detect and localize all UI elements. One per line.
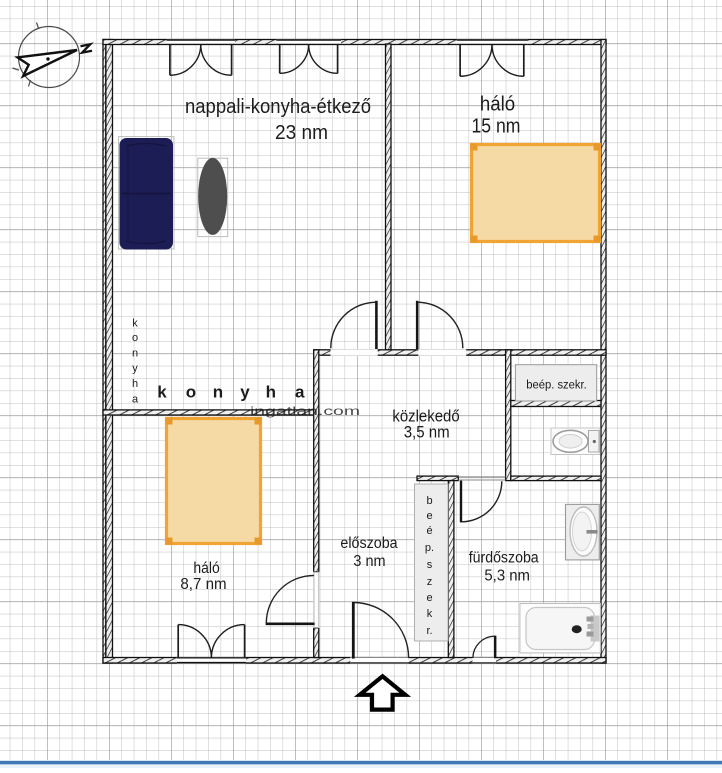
svg-text:k: k [427,608,433,620]
svg-text:n: n [213,382,223,401]
svg-text:r.: r. [426,625,432,637]
svg-text:8,7 nm: 8,7 nm [180,576,226,593]
svg-text:e: e [426,510,432,522]
svg-text:a: a [132,393,139,405]
svg-text:ingatlan.com: ingatlan.com [250,404,360,418]
svg-text:y: y [240,382,250,401]
svg-text:z: z [427,576,433,588]
svg-text:y: y [132,363,138,375]
svg-text:s: s [427,559,433,571]
svg-text:háló: háló [480,94,515,116]
svg-text:k: k [132,318,138,330]
svg-text:h: h [132,378,138,390]
svg-text:fürdőszoba: fürdőszoba [469,550,539,567]
svg-text:p.: p. [425,542,434,554]
svg-text:o: o [186,382,196,401]
svg-text:nappali-konyha-étkező: nappali-konyha-étkező [185,96,371,118]
svg-text:23 nm: 23 nm [275,122,328,144]
svg-text:előszoba: előszoba [340,535,398,552]
svg-text:b: b [426,495,432,507]
svg-text:a: a [295,382,305,401]
svg-text:háló: háló [193,560,219,577]
svg-text:5,3 nm: 5,3 nm [484,568,530,585]
svg-text:o: o [132,332,138,344]
svg-text:e: e [426,592,432,604]
svg-text:3,5 nm: 3,5 nm [404,423,450,442]
svg-text:15 nm: 15 nm [472,116,521,138]
svg-text:k: k [157,382,167,401]
svg-text:é: é [426,525,432,537]
svg-text:n: n [132,348,138,360]
svg-text:beép. szekr.: beép. szekr. [526,380,587,392]
svg-text:h: h [266,382,276,401]
svg-text:3 nm: 3 nm [353,553,385,570]
